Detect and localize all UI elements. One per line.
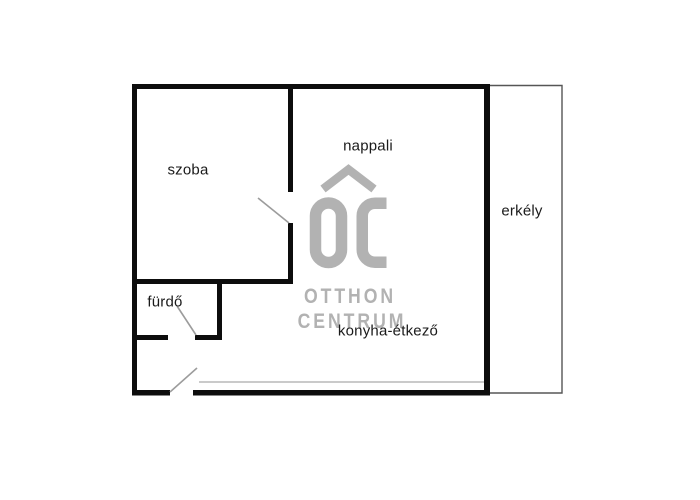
- watermark-logo-icon: [316, 170, 387, 263]
- wall-outer-top: [132, 84, 490, 89]
- wall-outer-left: [132, 84, 137, 395]
- room-label-erkely: erkély: [501, 203, 542, 220]
- watermark-line1: OTTHON: [295, 286, 405, 307]
- floor-plan-drawing: [0, 0, 700, 500]
- wall-furdo-bottom-left-segment: [132, 335, 168, 340]
- entry-door-line: [170, 368, 197, 392]
- balcony-outline: [490, 86, 562, 394]
- monogram-letter-c: [362, 203, 386, 262]
- floor-plan: OTTHON CENTRUM szoba nappali erkély fürd…: [0, 0, 700, 500]
- wall-furdo-right: [217, 279, 222, 340]
- wall-outer-bottom-left-segment: [132, 390, 170, 396]
- wall-szoba-bottom: [132, 279, 293, 284]
- room-label-nappali: nappali: [343, 138, 393, 155]
- wall-furdo-bottom-right-segment: [195, 335, 222, 340]
- wall-szoba-nappali-upper: [288, 84, 293, 192]
- szoba-door-line: [258, 198, 289, 223]
- monogram-letter-o: [316, 203, 342, 263]
- wall-outer-bottom-right-segment: [193, 390, 490, 396]
- room-label-konyha: konyha-étkező: [338, 323, 438, 340]
- wall-outer-right: [484, 84, 490, 395]
- room-label-furdo: fürdő: [147, 294, 182, 311]
- wall-szoba-nappali-lower: [288, 223, 293, 284]
- room-label-szoba: szoba: [167, 162, 208, 179]
- roof-chevron-icon: [323, 170, 374, 190]
- watermark-otthon-text: OTTHON: [304, 286, 396, 307]
